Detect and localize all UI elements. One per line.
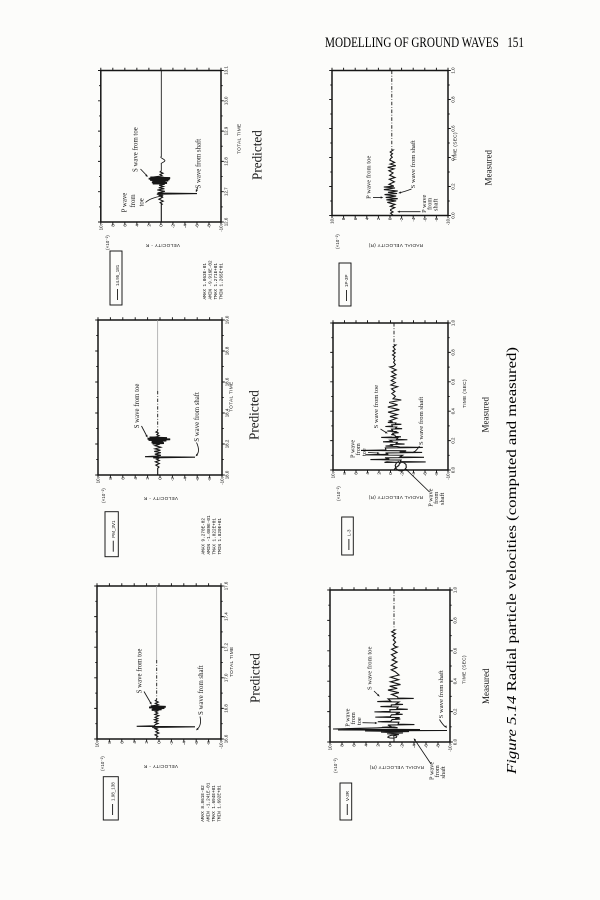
svg-text:0.4: 0.4: [451, 408, 456, 415]
svg-text:-2: -2: [400, 472, 405, 476]
svg-text:-6: -6: [422, 217, 427, 221]
svg-text:-4: -4: [412, 744, 417, 748]
svg-text:AMAX 1.063E-01: AMAX 1.063E-01: [203, 263, 208, 300]
svg-text:AMAX 9.270E-02: AMAX 9.270E-02: [202, 518, 207, 555]
svg-text:-8: -8: [436, 744, 441, 748]
svg-text:-2: -2: [399, 217, 404, 221]
svg-text:TIME (SEC): TIME (SEC): [453, 132, 459, 161]
svg-text:1.98_138: 1.98_138: [110, 782, 115, 801]
svg-text:0.6: 0.6: [451, 378, 456, 385]
svg-text:16.8: 16.8: [224, 704, 229, 713]
svg-text:-6: -6: [195, 477, 200, 481]
svg-text:shaft: shaft: [439, 493, 446, 505]
svg-text:Predicted: Predicted: [247, 390, 262, 440]
svg-text:(×10⁻²): (×10⁻²): [335, 234, 340, 249]
svg-text:0.8: 0.8: [453, 617, 458, 624]
svg-text:PM_3V1: PM_3V1: [111, 520, 116, 538]
svg-text:17.0: 17.0: [224, 673, 229, 682]
svg-text:0.0: 0.0: [451, 212, 456, 219]
svg-text:17.2: 17.2: [224, 642, 229, 651]
svg-text:10.: 10.: [98, 224, 103, 230]
svg-text:TMAX 1.822E+01: TMAX 1.822E+01: [213, 518, 218, 555]
svg-text:RADIAL VELOCITY (R): RADIAL VELOCITY (R): [368, 495, 423, 500]
svg-text:-8: -8: [206, 741, 211, 745]
svg-text:0.6: 0.6: [451, 125, 456, 132]
svg-text:13.1: 13.1: [224, 66, 229, 75]
svg-text:-2: -2: [169, 741, 174, 745]
svg-text:-2: -2: [171, 224, 176, 228]
svg-text:AMIN -9.916E-02: AMIN -9.916E-02: [209, 260, 214, 299]
svg-text:10.: 10.: [330, 218, 335, 224]
svg-text:0.2: 0.2: [451, 183, 456, 190]
svg-text:-4: -4: [183, 224, 188, 228]
svg-text:0.0: 0.0: [453, 738, 458, 745]
svg-text:-8: -8: [207, 477, 212, 481]
svg-text:TOTAL TIME: TOTAL TIME: [228, 381, 234, 412]
svg-text:P wave from toe: P wave from toe: [366, 156, 373, 199]
svg-text:VELOCITY - R: VELOCITY - R: [143, 496, 178, 501]
svg-text:-10.: -10.: [446, 218, 451, 226]
svg-text:1.0: 1.0: [453, 586, 458, 593]
svg-text:18.2: 18.2: [225, 439, 230, 448]
svg-text:S wave from toe: S wave from toe: [137, 649, 144, 694]
svg-text:Measured: Measured: [481, 668, 491, 704]
svg-text:-6: -6: [195, 224, 200, 228]
svg-text:16.6: 16.6: [224, 734, 229, 743]
svg-text:-10.: -10.: [219, 741, 224, 749]
svg-text:12.8: 12.8: [224, 157, 229, 166]
svg-text:Figure 5.14 Radial particle ve: Figure 5.14 Radial particle velocities (…: [504, 347, 519, 775]
svg-text:17.4: 17.4: [224, 612, 229, 621]
svg-text:10.: 10.: [95, 741, 100, 747]
svg-text:TOTAL TIME: TOTAL TIME: [229, 646, 235, 677]
svg-text:L-3: L-3: [347, 529, 352, 536]
svg-text:V-3R: V-3R: [345, 790, 350, 801]
svg-text:(×10⁻²): (×10⁻²): [101, 488, 106, 503]
svg-text:Measured: Measured: [484, 150, 494, 186]
svg-text:TMAX 1.271E+01: TMAX 1.271E+01: [214, 263, 219, 300]
svg-text:Predicted: Predicted: [248, 653, 263, 703]
svg-text:18.0: 18.0: [225, 470, 230, 479]
svg-text:-4: -4: [181, 741, 186, 745]
svg-text:0.2: 0.2: [451, 437, 456, 444]
svg-text:(×10⁻²): (×10⁻²): [333, 758, 338, 773]
svg-text:S wave from shaft: S wave from shaft: [198, 665, 205, 715]
svg-text:-8: -8: [434, 217, 439, 221]
svg-text:TMIN 1.692E+01: TMIN 1.692E+01: [218, 785, 223, 822]
svg-text:18.8: 18.8: [225, 346, 230, 355]
svg-text:-6: -6: [194, 741, 199, 745]
svg-text:1.0: 1.0: [451, 319, 456, 326]
svg-text:VELOCITY - R: VELOCITY - R: [145, 243, 180, 248]
svg-text:10.: 10.: [96, 477, 101, 483]
svg-text:10.: 10.: [331, 472, 336, 478]
svg-text:S wave from toe: S wave from toe: [367, 647, 374, 690]
svg-text:19.0: 19.0: [225, 315, 230, 324]
svg-text:RADIAL VELOCITY (R): RADIAL VELOCITY (R): [369, 765, 424, 770]
svg-text:-4: -4: [411, 217, 416, 221]
svg-text:AMIN -1.241E-01: AMIN -1.241E-01: [207, 782, 212, 821]
svg-text:TMAX 1.694E+01: TMAX 1.694E+01: [212, 785, 217, 822]
svg-text:-6: -6: [423, 472, 428, 476]
svg-text:-10.: -10.: [219, 224, 224, 232]
svg-text:RADIAL VELOCITY (R): RADIAL VELOCITY (R): [368, 243, 423, 248]
svg-text:MODELLING OF GROUND WAVES 15: MODELLING OF GROUND WAVES 151: [325, 35, 524, 51]
svg-text:-2: -2: [170, 477, 175, 481]
svg-text:toe: toe: [356, 717, 363, 725]
svg-text:-4: -4: [182, 477, 187, 481]
svg-text:TMIN 1.820E+01: TMIN 1.820E+01: [218, 518, 223, 555]
svg-text:0.8: 0.8: [451, 349, 456, 356]
svg-text:toe: toe: [361, 448, 368, 456]
svg-text:VELOCITY - R: VELOCITY - R: [143, 764, 178, 769]
svg-text:S wave from shaft: S wave from shaft: [438, 670, 445, 718]
svg-text:Measured: Measured: [481, 397, 491, 433]
svg-text:-10.: -10.: [448, 744, 453, 752]
svg-text:12.7: 12.7: [224, 187, 229, 196]
svg-text:AMAX 8.861E-02: AMAX 8.861E-02: [201, 785, 206, 822]
svg-text:(×10⁻²): (×10⁻²): [105, 235, 110, 250]
svg-text:-8: -8: [434, 472, 439, 476]
svg-text:toe: toe: [139, 198, 146, 206]
svg-text:TMIN 1.265E+01: TMIN 1.265E+01: [220, 263, 225, 300]
svg-text:-10.: -10.: [446, 472, 451, 480]
svg-text:-10.: -10.: [220, 477, 225, 485]
svg-text:10.: 10.: [328, 744, 333, 750]
svg-text:1.0: 1.0: [451, 67, 456, 74]
svg-text:TOTAL TIME: TOTAL TIME: [237, 123, 243, 154]
svg-text:-6: -6: [424, 744, 429, 748]
svg-text:S wave from toe: S wave from toe: [373, 385, 380, 428]
svg-text:S wave from shaft: S wave from shaft: [418, 397, 425, 445]
svg-text:S wave from shaft: S wave from shaft: [194, 392, 201, 442]
svg-text:shaft: shaft: [440, 766, 447, 778]
svg-text:-2: -2: [400, 744, 405, 748]
svg-text:TIME (SEC): TIME (SEC): [462, 379, 468, 408]
svg-text:0.2: 0.2: [453, 708, 458, 715]
svg-text:12.9: 12.9: [224, 126, 229, 135]
svg-text:from: from: [130, 194, 137, 208]
svg-text:shaft: shaft: [432, 199, 439, 211]
svg-text:S wave from toe: S wave from toe: [134, 384, 141, 429]
svg-text:P wave: P wave: [122, 193, 129, 213]
svg-text:12.6: 12.6: [224, 217, 229, 226]
svg-text:-8: -8: [207, 224, 212, 228]
svg-text:TIME (SEC): TIME (SEC): [462, 655, 468, 684]
svg-text:17.6: 17.6: [224, 581, 229, 590]
svg-text:0.6: 0.6: [453, 647, 458, 654]
svg-text:S wave from toe: S wave from toe: [133, 127, 140, 172]
svg-text:0.0: 0.0: [451, 466, 456, 473]
svg-text:1P-3P: 1P-3P: [344, 274, 349, 287]
svg-text:S wave from shaft: S wave from shaft: [196, 139, 203, 189]
svg-text:S wave from shaft: S wave from shaft: [410, 140, 417, 188]
svg-text:(×10⁻²): (×10⁻²): [100, 756, 105, 771]
svg-text:14.95_181: 14.95_181: [115, 264, 120, 286]
svg-text:0.8: 0.8: [451, 96, 456, 103]
svg-text:AMIN -1.089E-01: AMIN -1.089E-01: [207, 515, 212, 554]
svg-text:0.4: 0.4: [453, 678, 458, 685]
svg-text:13.0: 13.0: [224, 96, 229, 105]
svg-text:(×10⁻²): (×10⁻²): [336, 486, 341, 501]
svg-text:Predicted: Predicted: [250, 130, 265, 180]
